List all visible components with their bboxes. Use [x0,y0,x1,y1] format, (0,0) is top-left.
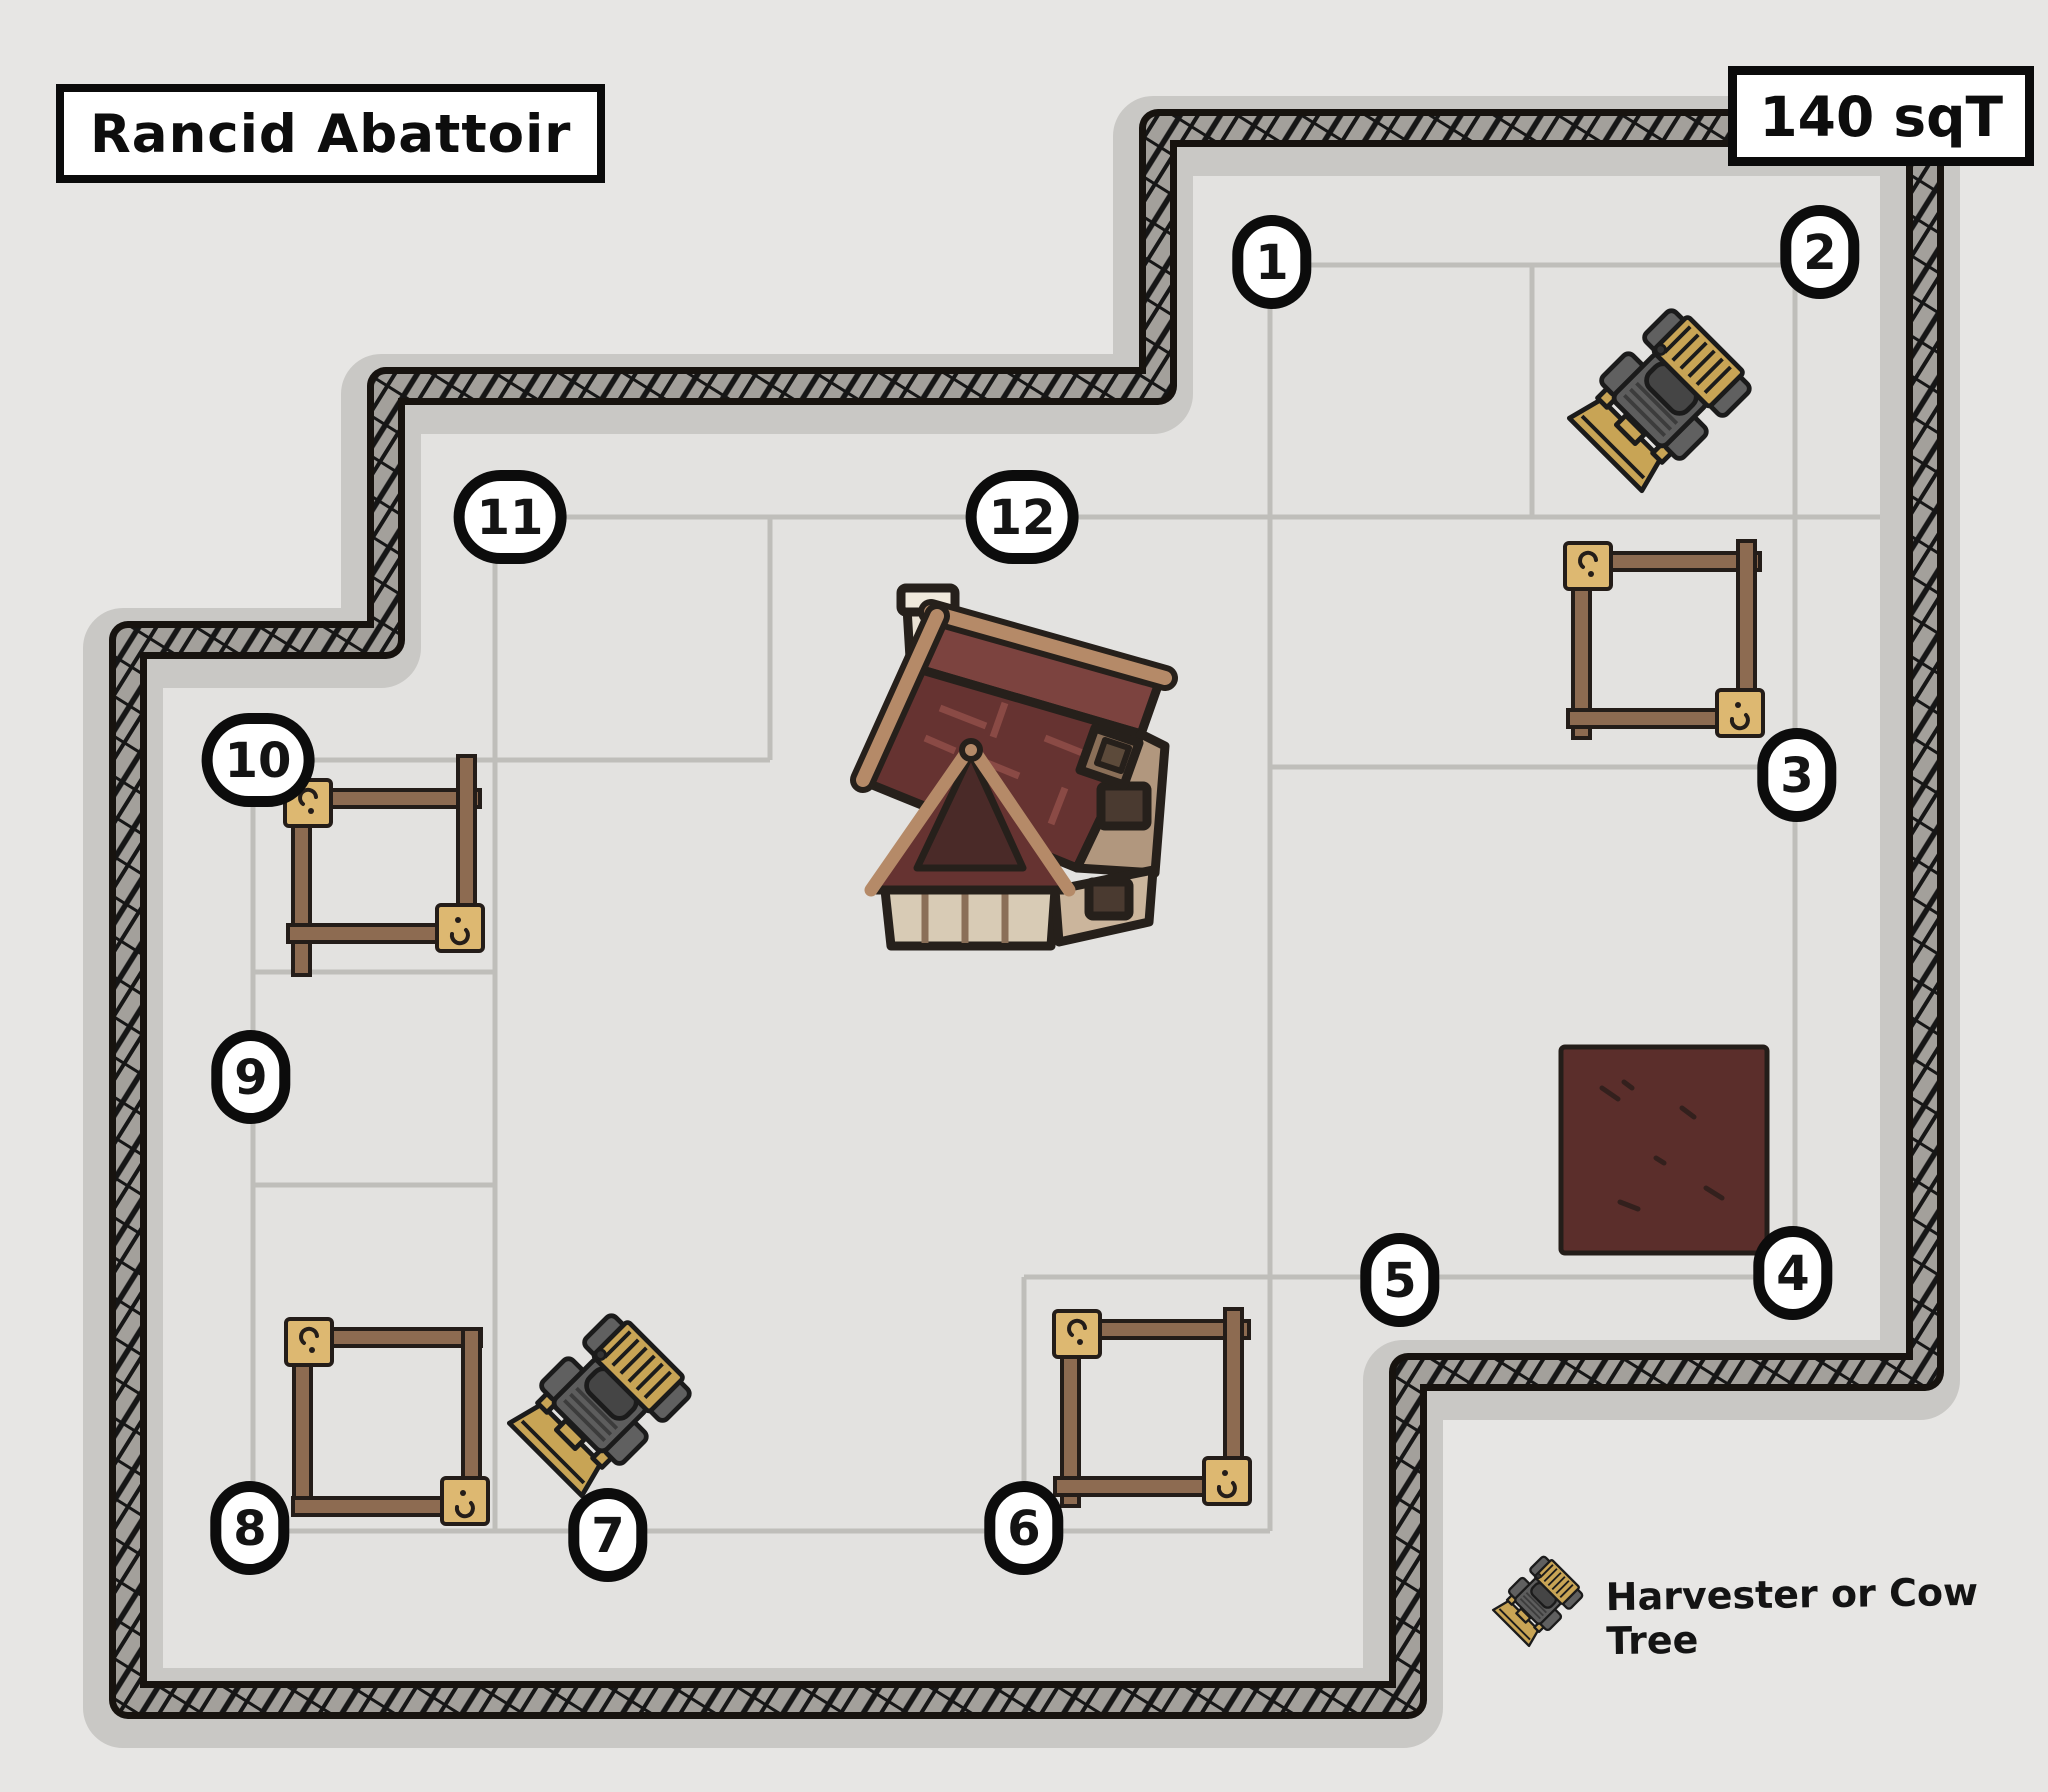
area-size-label: 140 sqT [1728,66,2034,166]
legend-label: Harvester or Cow Tree [1605,1569,2048,1663]
paddock-badge-12: 12 [966,470,1079,564]
paddock-badge-7: 7 [568,1488,647,1582]
farm-map-stage: Rancid Abattoir 140 sqT Harvester or Cow… [0,0,2048,1792]
paddock-badge-4: 4 [1753,1226,1832,1320]
paddock-badge-6: 6 [984,1481,1063,1575]
legend-harvester-icon [1491,1553,1585,1647]
map-title: Rancid Abattoir [56,84,605,183]
paddock-badge-2: 2 [1780,205,1859,299]
paddock-badge-9: 9 [211,1030,290,1124]
paddock-badge-10: 10 [202,713,315,807]
paddock-badge-5: 5 [1360,1233,1439,1327]
paddock-badge-8: 8 [210,1481,289,1575]
paddock-badge-3: 3 [1757,728,1836,822]
paddock-badge-1: 1 [1232,215,1311,309]
soil-patch [1561,1047,1767,1253]
paddock-badge-11: 11 [454,470,567,564]
